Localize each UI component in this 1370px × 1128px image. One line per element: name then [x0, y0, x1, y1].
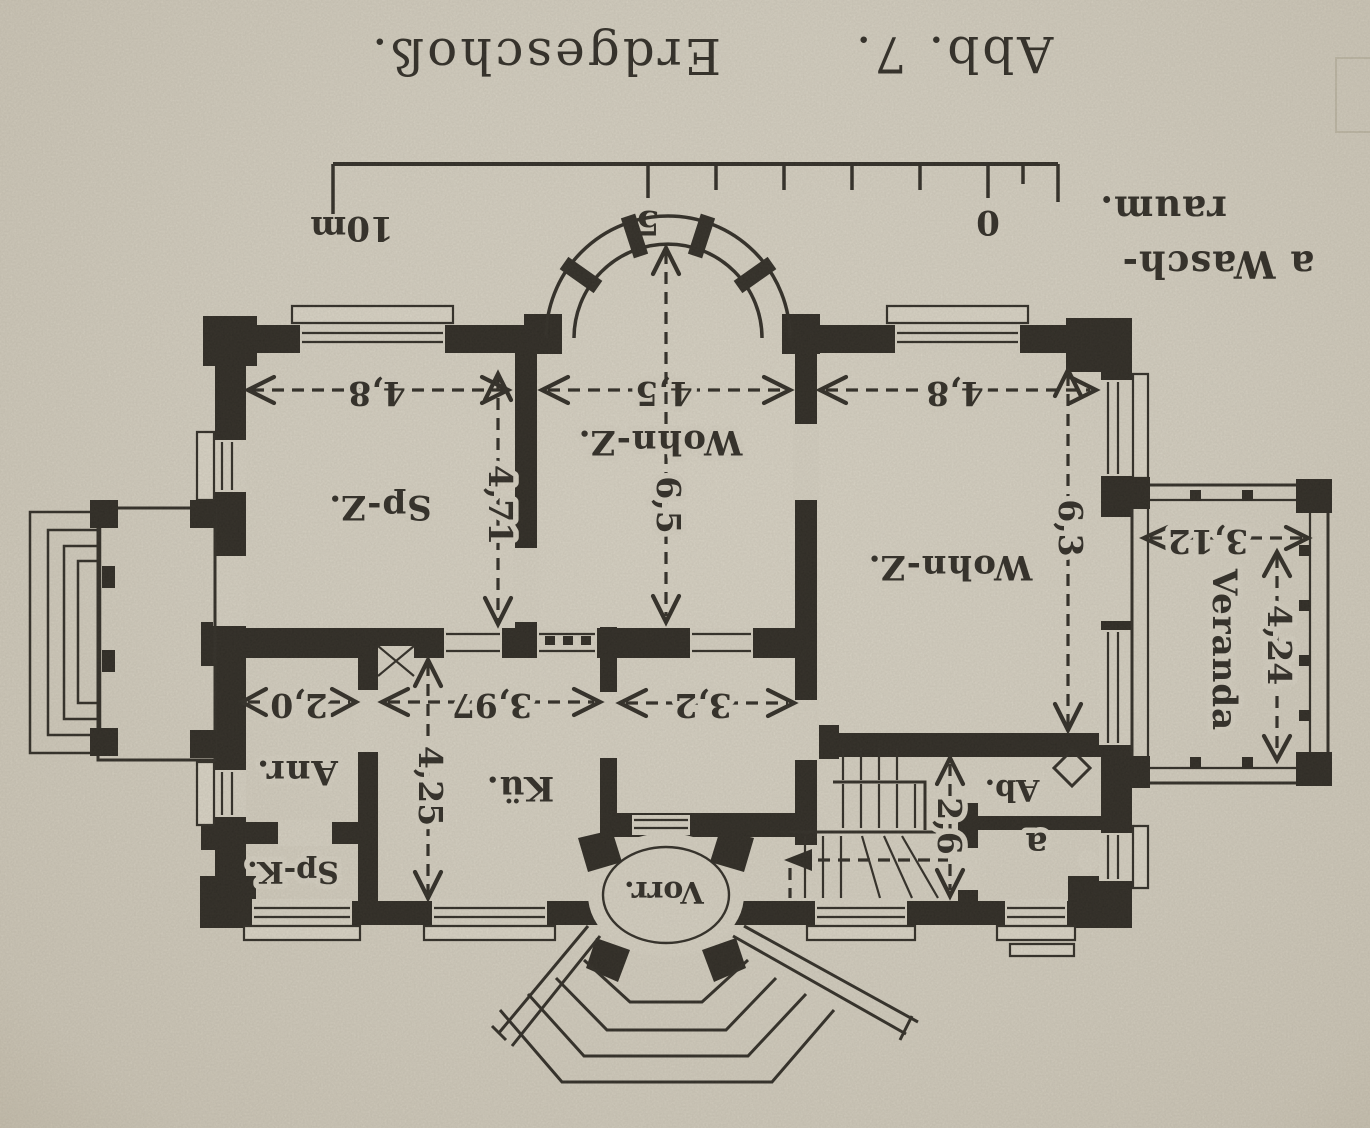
porch-corner-blocks [90, 500, 216, 758]
dimension-label: 6,3 [1051, 499, 1090, 556]
figure-caption: Erdgeschoß. Abb. 7. [369, 25, 1054, 85]
room-label-a: a [1024, 824, 1047, 864]
side-porch [30, 500, 216, 760]
dimension-label: 4,5 [635, 374, 692, 413]
legend-line-2: raum. [1099, 188, 1226, 232]
stair-walk-line [790, 860, 948, 898]
room-label-vorr: Vorr. [624, 874, 705, 909]
mullion-ticks [545, 636, 591, 645]
dimension-anr-width: 2,0 [242, 686, 356, 725]
legend-line-1: a Wasch- [1122, 243, 1315, 287]
dimension-label: 3,2 [674, 686, 731, 725]
dimension-label: 3,12 [1168, 522, 1248, 561]
scale-label-0: 0 [976, 202, 1000, 242]
scan-artifact-mark [1336, 58, 1370, 132]
room-label-anr: Anr. [256, 752, 339, 792]
dimension-label: 6,5 [649, 476, 688, 533]
wash-basin-icon [1077, 850, 1099, 872]
dimension-kueche-depth: 4,25 [411, 660, 450, 898]
scanned-book-page: Erdgeschoß. Abb. 7. 10m 5 0 raum. a Wasc… [0, 0, 1370, 1128]
dimension-label: 4,8 [926, 374, 983, 413]
stair-treads [805, 748, 938, 898]
dimension-label: 4,71 [481, 465, 520, 545]
stair-direction-arrow-icon [784, 849, 812, 871]
room-label-ab: Ab. [985, 772, 1041, 807]
scale-bar: 10m 5 0 [310, 164, 1058, 248]
dimension-label: 2,6 [930, 797, 969, 854]
porch-steps [30, 512, 100, 753]
entrance-steps [500, 960, 834, 1082]
dimension-wohn-right-depth: 6,3 [1051, 370, 1090, 730]
dimension-label: 2,0 [270, 686, 327, 725]
dimension-label: 3,97 [452, 686, 532, 725]
bay-window [546, 216, 790, 338]
caption-number: Abb. 7. [853, 25, 1055, 83]
entrance-vestibule [492, 830, 918, 1082]
room-label-sp-z: Sp-Z. [328, 487, 432, 527]
legend: raum. a Wasch- [1099, 188, 1314, 287]
flue-box-icon [378, 646, 414, 676]
dimension-sp-z-width: 4,8 [248, 374, 508, 413]
dimension-label: 4,24 [1260, 605, 1299, 685]
room-label-kueche: Kü. [486, 768, 554, 808]
dimension-veranda-width: 3,12 [1144, 522, 1308, 561]
scale-bar-ticks [333, 164, 1058, 214]
floor-plan-figure: Erdgeschoß. Abb. 7. 10m 5 0 raum. a Wasc… [0, 0, 1370, 1128]
room-label-veranda: Veranda [1204, 568, 1244, 731]
scale-label-10m: 10m [310, 208, 393, 248]
room-label-sp-k: Sp-K. [247, 854, 339, 889]
caption-title: Erdgeschoß. [369, 27, 721, 85]
room-label-wohn-z-mitte: Wohn-Z. [578, 422, 744, 462]
paper-grain-texture [0, 0, 1370, 1128]
dimension-veranda-depth: 4,24 [1260, 552, 1299, 760]
dimension-kueche-width: 3,97 [382, 686, 600, 725]
room-label-wohn-z-rechts: Wohn-Z. [868, 547, 1034, 587]
dimension-label: 4,25 [411, 746, 450, 826]
dimension-label: 4,8 [348, 374, 405, 413]
porch-platform [98, 508, 215, 760]
dimension-flur-width: 3,2 [620, 686, 794, 725]
